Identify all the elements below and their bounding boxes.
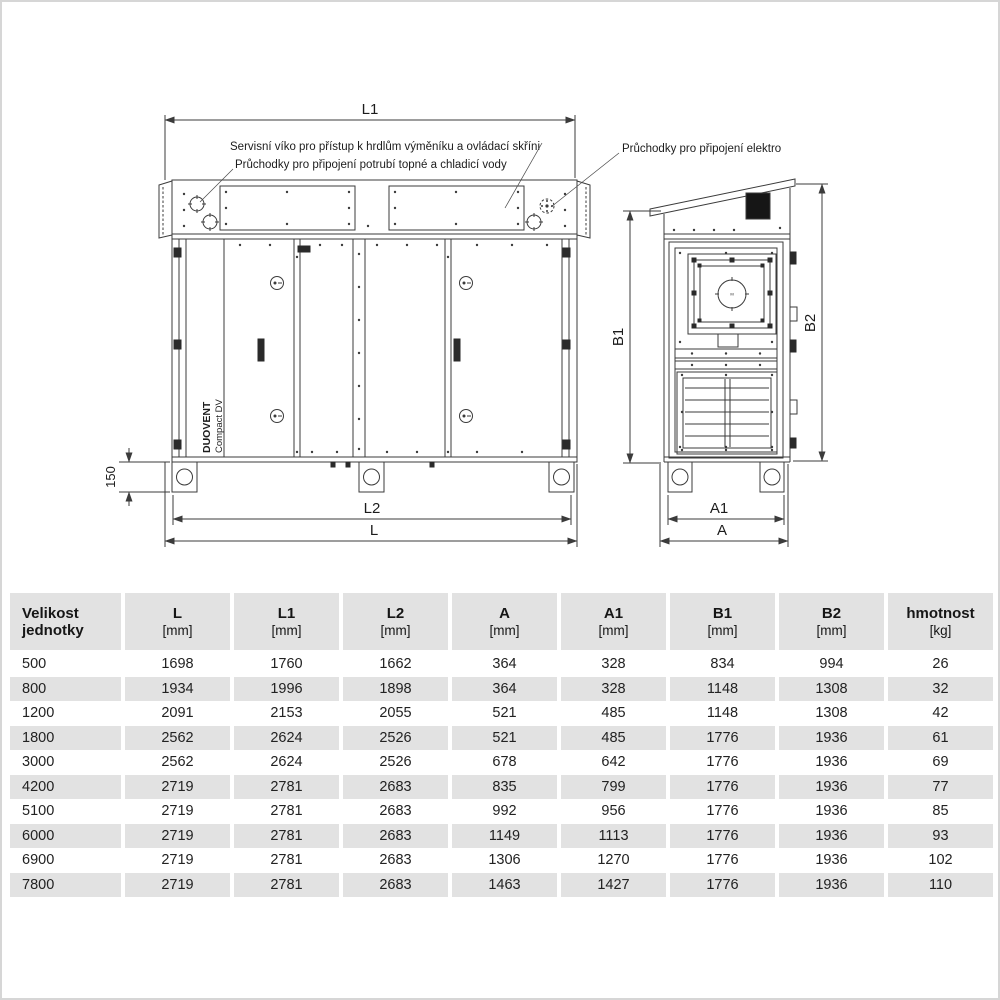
dimension-value-cell: 1936	[779, 848, 884, 873]
dimension-value-cell: 1996	[234, 677, 339, 702]
hinges	[174, 248, 570, 449]
table-row: 30002562262425266786421776193669	[10, 750, 993, 775]
table-row: 69002719278126831306127017761936102	[10, 848, 993, 873]
dimension-value-cell: 2153	[234, 701, 339, 726]
dim-foot-height: 150	[103, 448, 170, 506]
svg-text:B1: B1	[610, 328, 627, 346]
side-rails	[675, 349, 777, 369]
svg-text:150: 150	[103, 466, 118, 488]
table-row: 12002091215320555214851148130842	[10, 701, 993, 726]
dimension-value-cell: 77	[888, 775, 993, 800]
dimension-value-cell: 61	[888, 726, 993, 751]
column-header-unit-size: Velikost jednotky	[10, 593, 121, 650]
screw-dots-side-top	[673, 227, 781, 231]
dimension-value-cell: 1148	[670, 677, 775, 702]
dimension-value-cell: 485	[561, 701, 666, 726]
dimension-value-cell: 328	[561, 652, 666, 677]
unit-size-cell: 5100	[10, 799, 121, 824]
door-handle-left	[258, 339, 264, 361]
dimension-value-cell: 1308	[779, 701, 884, 726]
front-base-feet	[172, 462, 577, 492]
unit-size-cell: 7800	[10, 873, 121, 898]
dimension-value-cell: 85	[888, 799, 993, 824]
front-view: DUOVENT Compact DV	[159, 180, 590, 492]
dimension-value-cell: 835	[452, 775, 557, 800]
dimension-value-cell: 2683	[343, 799, 448, 824]
pipe-grommets-note: Průchodky pro připojení potrubí topné a …	[235, 159, 507, 171]
dimension-value-cell: 2683	[343, 824, 448, 849]
dimension-value-cell: 521	[452, 701, 557, 726]
type-label-sticker	[298, 246, 310, 252]
annotations: Servisní víko pro přístup k hrdlům výměn…	[200, 141, 781, 208]
unit-size-cell: 6900	[10, 848, 121, 873]
table-row: 8001934199618983643281148130832	[10, 677, 993, 702]
dimension-value-cell: 2624	[234, 726, 339, 751]
right-end-flap	[577, 181, 590, 238]
column-header-l: L [mm]	[125, 593, 230, 650]
dimension-value-cell: 2781	[234, 799, 339, 824]
dimension-value-cell: 110	[888, 873, 993, 898]
dimension-value-cell: 364	[452, 652, 557, 677]
unit-size-cell: 3000	[10, 750, 121, 775]
table-row: 50016981760166236432883499426	[10, 652, 993, 677]
dimension-value-cell: 102	[888, 848, 993, 873]
dim-a1: A1	[668, 495, 784, 525]
column-header-a: A [mm]	[452, 593, 557, 650]
svg-text:DUOVENT: DUOVENT	[201, 401, 213, 453]
dimension-value-cell: 994	[779, 652, 884, 677]
dimension-value-cell: 1936	[779, 799, 884, 824]
dimension-value-cell: 2091	[125, 701, 230, 726]
table-row: 6000271927812683114911131776193693	[10, 824, 993, 849]
table-row: 42002719278126838357991776193677	[10, 775, 993, 800]
dimension-value-cell: 2719	[125, 873, 230, 898]
door-latch-icons-left	[271, 277, 284, 423]
dimension-value-cell: 2719	[125, 799, 230, 824]
svg-text:Compact DV: Compact DV	[214, 398, 225, 453]
service-cover-note: Servisní víko pro přístup k hrdlům výměn…	[230, 141, 540, 153]
dimension-value-cell: 1936	[779, 726, 884, 751]
door-handle-right	[454, 339, 460, 361]
dimension-value-cell: 1936	[779, 824, 884, 849]
louver-section	[677, 372, 777, 454]
unit-size-cell: 6000	[10, 824, 121, 849]
dimension-value-cell: 992	[452, 799, 557, 824]
dimension-value-cell: 1936	[779, 775, 884, 800]
dimension-value-cell: 93	[888, 824, 993, 849]
unit-size-cell: 800	[10, 677, 121, 702]
dim-b1: B1	[610, 211, 661, 463]
dimension-value-cell: 2719	[125, 824, 230, 849]
table-row: 78002719278126831463142717761936110	[10, 873, 993, 898]
dimension-value-cell: 1463	[452, 873, 557, 898]
door-latch-icons-right	[460, 277, 473, 423]
unit-size-cell: 4200	[10, 775, 121, 800]
screw-dots-service-band	[183, 191, 566, 227]
dimension-value-cell: 1776	[670, 750, 775, 775]
unit-brand-label: DUOVENT Compact DV	[201, 398, 225, 453]
unit-size-cell: 1800	[10, 726, 121, 751]
dimension-value-cell: 1776	[670, 873, 775, 898]
screw-dots-body	[239, 244, 548, 453]
dimension-value-cell: 1662	[343, 652, 448, 677]
dimension-value-cell: 2624	[234, 750, 339, 775]
dimension-value-cell: 1760	[234, 652, 339, 677]
dimension-value-cell: 642	[561, 750, 666, 775]
unit-size-cell: 500	[10, 652, 121, 677]
dimension-value-cell: 2683	[343, 848, 448, 873]
table-header-row: Velikost jednotky L [mm] L1 [mm] L2 [mm]…	[10, 593, 993, 650]
fan-icon: M	[715, 277, 749, 311]
svg-text:L: L	[370, 522, 378, 539]
dimension-value-cell: 1936	[779, 873, 884, 898]
side-view: M	[650, 179, 797, 492]
column-header-b1: B1 [mm]	[670, 593, 775, 650]
technical-drawing: DUOVENT Compact DV	[2, 2, 1000, 580]
svg-text:M: M	[730, 292, 733, 297]
table-row: 51002719278126839929561776193685	[10, 799, 993, 824]
side-inner-frame	[669, 242, 783, 458]
column-header-l2: L2 [mm]	[343, 593, 448, 650]
unit-size-cell: 1200	[10, 701, 121, 726]
electro-grommets-note: Průchodky pro připojení elektro	[622, 143, 781, 155]
dimension-value-cell: 1776	[670, 775, 775, 800]
dimension-value-cell: 1306	[452, 848, 557, 873]
front-casing	[172, 180, 577, 462]
dimensions-table: Velikost jednotky L [mm] L1 [mm] L2 [mm]…	[10, 593, 993, 897]
column-header-l1: L1 [mm]	[234, 593, 339, 650]
dimension-value-cell: 678	[452, 750, 557, 775]
left-end-flap	[159, 181, 172, 238]
dimension-value-cell: 2562	[125, 750, 230, 775]
dimension-value-cell: 485	[561, 726, 666, 751]
door-panels	[179, 239, 569, 457]
dimension-value-cell: 2055	[343, 701, 448, 726]
dimension-value-cell: 26	[888, 652, 993, 677]
dimension-value-cell: 1113	[561, 824, 666, 849]
dimension-value-cell: 2781	[234, 775, 339, 800]
svg-text:B2: B2	[802, 314, 819, 332]
side-base-feet	[664, 462, 790, 492]
dimension-value-cell: 364	[452, 677, 557, 702]
dimension-value-cell: 1149	[452, 824, 557, 849]
dimension-value-cell: 42	[888, 701, 993, 726]
dimension-value-cell: 32	[888, 677, 993, 702]
dimension-value-cell: 1776	[670, 726, 775, 751]
dimension-value-cell: 69	[888, 750, 993, 775]
dimension-value-cell: 2781	[234, 848, 339, 873]
dimension-value-cell: 1776	[670, 824, 775, 849]
dimension-value-cell: 2719	[125, 848, 230, 873]
dimension-value-cell: 1776	[670, 799, 775, 824]
sloped-roof	[650, 179, 795, 216]
dimension-value-cell: 1427	[561, 873, 666, 898]
electro-grommet-icons	[525, 199, 554, 231]
dimension-value-cell: 1936	[779, 750, 884, 775]
dimension-value-cell: 834	[670, 652, 775, 677]
dimension-value-cell: 799	[561, 775, 666, 800]
dimension-value-cell: 2526	[343, 726, 448, 751]
svg-text:A: A	[717, 522, 727, 539]
dimension-value-cell: 1698	[125, 652, 230, 677]
dimension-value-cell: 2781	[234, 873, 339, 898]
dim-b2: B2	[793, 184, 828, 461]
table-body: 5001698176016623643288349942680019341996…	[10, 652, 993, 897]
dimension-value-cell: 2683	[343, 873, 448, 898]
column-header-weight: hmotnost [kg]	[888, 593, 993, 650]
dimension-value-cell: 2562	[125, 726, 230, 751]
svg-text:L1: L1	[362, 101, 379, 118]
table-row: 18002562262425265214851776193661	[10, 726, 993, 751]
dimension-value-cell: 521	[452, 726, 557, 751]
datasheet-page: DUOVENT Compact DV	[0, 0, 1000, 1000]
svg-text:L2: L2	[364, 500, 381, 517]
pipe-grommet-icons	[188, 195, 219, 231]
dim-l2: L2	[173, 495, 571, 525]
column-header-a1: A1 [mm]	[561, 593, 666, 650]
dimension-value-cell: 1776	[670, 848, 775, 873]
electric-box-panel	[746, 193, 770, 219]
dimension-value-cell: 956	[561, 799, 666, 824]
dimension-value-cell: 1934	[125, 677, 230, 702]
column-header-b2: B2 [mm]	[779, 593, 884, 650]
dimension-value-cell: 1308	[779, 677, 884, 702]
side-hinge-tabs	[790, 252, 797, 448]
dimension-value-cell: 2719	[125, 775, 230, 800]
dimension-value-cell: 2683	[343, 775, 448, 800]
dimension-value-cell: 1898	[343, 677, 448, 702]
dimension-value-cell: 2781	[234, 824, 339, 849]
svg-text:A1: A1	[710, 500, 728, 517]
dimension-value-cell: 1148	[670, 701, 775, 726]
dimension-value-cell: 1270	[561, 848, 666, 873]
dimension-value-cell: 328	[561, 677, 666, 702]
fan-access-panel: M	[688, 254, 776, 347]
dimension-value-cell: 2526	[343, 750, 448, 775]
